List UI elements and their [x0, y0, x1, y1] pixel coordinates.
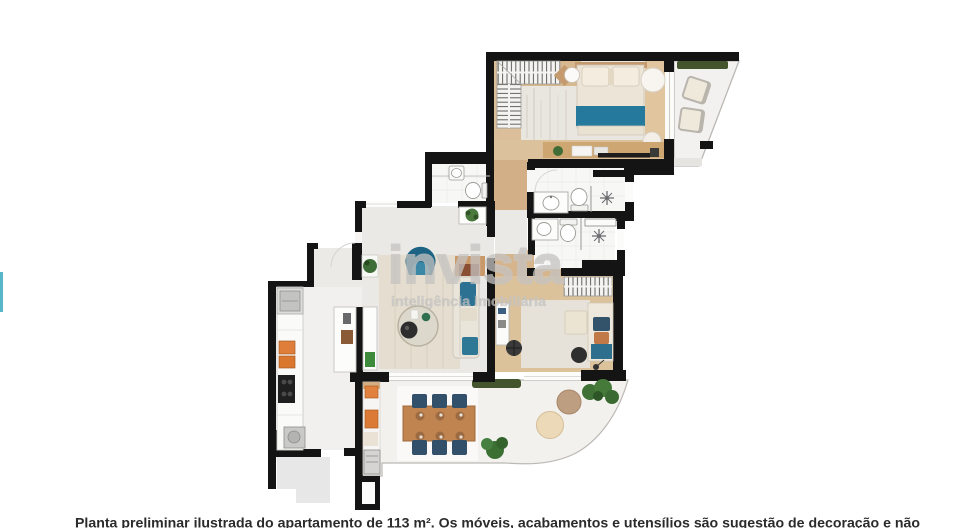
- svg-text:invista: invista: [388, 236, 564, 295]
- svg-text:Planta preliminar ilustrada do: Planta preliminar ilustrada do apartamen…: [75, 515, 920, 528]
- svg-text:inteligência imobiliária: inteligência imobiliária: [391, 294, 547, 309]
